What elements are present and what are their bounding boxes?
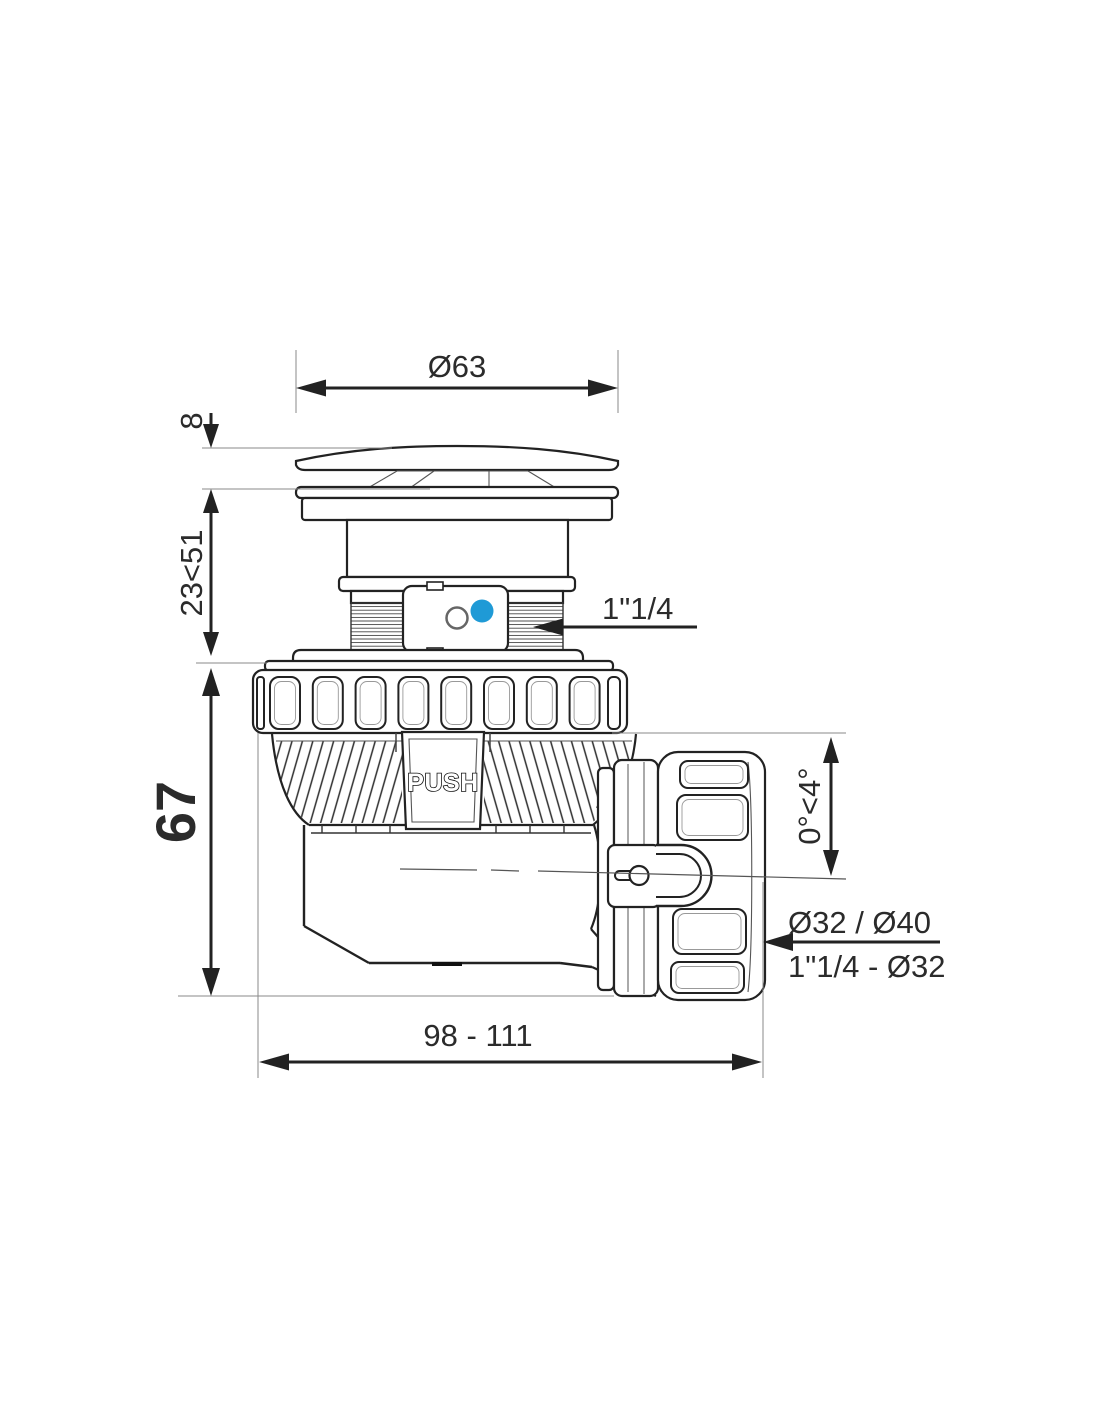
cap-dome (296, 446, 618, 470)
dimension-cap-height: 8 (174, 412, 392, 448)
cap-underside (368, 471, 556, 488)
dimension-cap-diameter: Ø63 (296, 349, 618, 413)
plate-top-notch (427, 582, 443, 590)
push-tab: PUSH (396, 732, 490, 829)
technical-drawing-page: PUSH (0, 0, 1100, 1422)
strainer-bowl: PUSH (272, 732, 636, 833)
inlet-thread-label: 1"1/4 (602, 591, 673, 626)
indicator-blue-dot (471, 600, 494, 623)
cap-flange-band (302, 498, 612, 520)
outlet-angle-label: 0°<4° (792, 767, 827, 844)
dimension-outlet: Ø32 / Ø40 1"1/4 - Ø32 (763, 905, 945, 984)
drain-trap-technical-drawing: PUSH (0, 0, 1100, 1422)
keyhole-hole (630, 866, 649, 885)
cap-diameter-label: Ø63 (428, 349, 487, 384)
indicator-hole (447, 608, 468, 629)
outlet-thread-label: 1"1/4 - Ø32 (788, 949, 945, 984)
outlet-diameters-label: Ø32 / Ø40 (788, 905, 931, 940)
push-label: PUSH (407, 769, 478, 797)
body-height-label: 67 (144, 781, 207, 843)
base-flange-assembly (253, 650, 627, 733)
bowl-hatch-left (274, 741, 402, 823)
cap-assembly (296, 446, 618, 656)
cap-cylinder (347, 520, 568, 577)
cap-height-label: 8 (174, 412, 209, 429)
overall-length-label: 98 - 111 (423, 1018, 532, 1053)
adjustable-height-label: 23<51 (174, 529, 209, 616)
indicator-plate (403, 582, 508, 656)
keyhole-tab (608, 845, 660, 907)
